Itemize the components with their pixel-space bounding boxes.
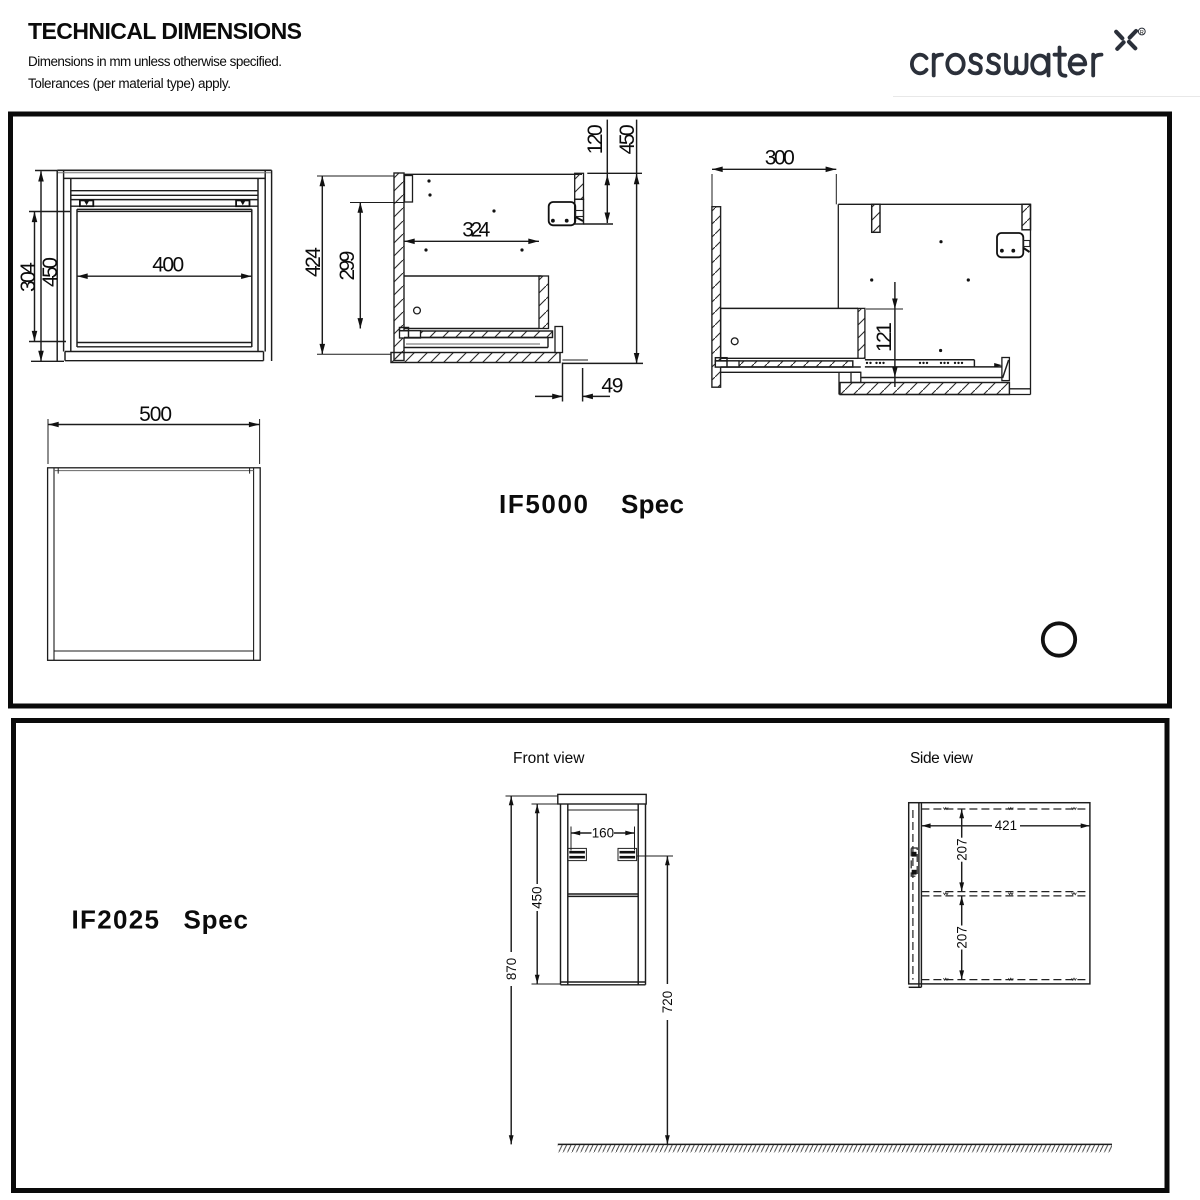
- svg-text:304: 304: [17, 262, 40, 292]
- svg-text:870: 870: [504, 958, 519, 980]
- svg-text:421: 421: [995, 818, 1017, 833]
- svg-text:450: 450: [616, 124, 639, 154]
- svg-text:160: 160: [592, 826, 614, 841]
- svg-text:TECHNICAL DIMENSIONS: TECHNICAL DIMENSIONS: [28, 18, 302, 44]
- svg-text:120: 120: [584, 124, 607, 154]
- svg-text:Spec: Spec: [621, 489, 684, 519]
- svg-text:720: 720: [660, 991, 675, 1013]
- svg-text:IF5000: IF5000: [499, 489, 588, 519]
- svg-text:400: 400: [152, 253, 184, 276]
- svg-text:49: 49: [601, 374, 623, 397]
- svg-text:300: 300: [765, 147, 795, 170]
- svg-text:299: 299: [336, 251, 359, 281]
- svg-text:Tolerances (per material type): Tolerances (per material type) apply.: [28, 76, 231, 91]
- svg-text:324: 324: [462, 218, 490, 241]
- svg-text:IF2025: IF2025: [72, 905, 160, 935]
- svg-text:207: 207: [955, 926, 970, 948]
- svg-text:Front view: Front view: [513, 750, 585, 767]
- svg-text:450: 450: [39, 257, 62, 287]
- svg-text:450: 450: [529, 886, 544, 908]
- svg-text:R: R: [1140, 30, 1144, 36]
- svg-text:207: 207: [955, 838, 970, 860]
- svg-text:121: 121: [873, 322, 896, 352]
- svg-text:Side view: Side view: [910, 750, 974, 767]
- svg-text:Spec: Spec: [184, 905, 249, 935]
- svg-text:500: 500: [139, 403, 172, 426]
- svg-text:424: 424: [302, 247, 325, 277]
- svg-text:Dimensions in mm unless otherw: Dimensions in mm unless otherwise specif…: [28, 54, 282, 69]
